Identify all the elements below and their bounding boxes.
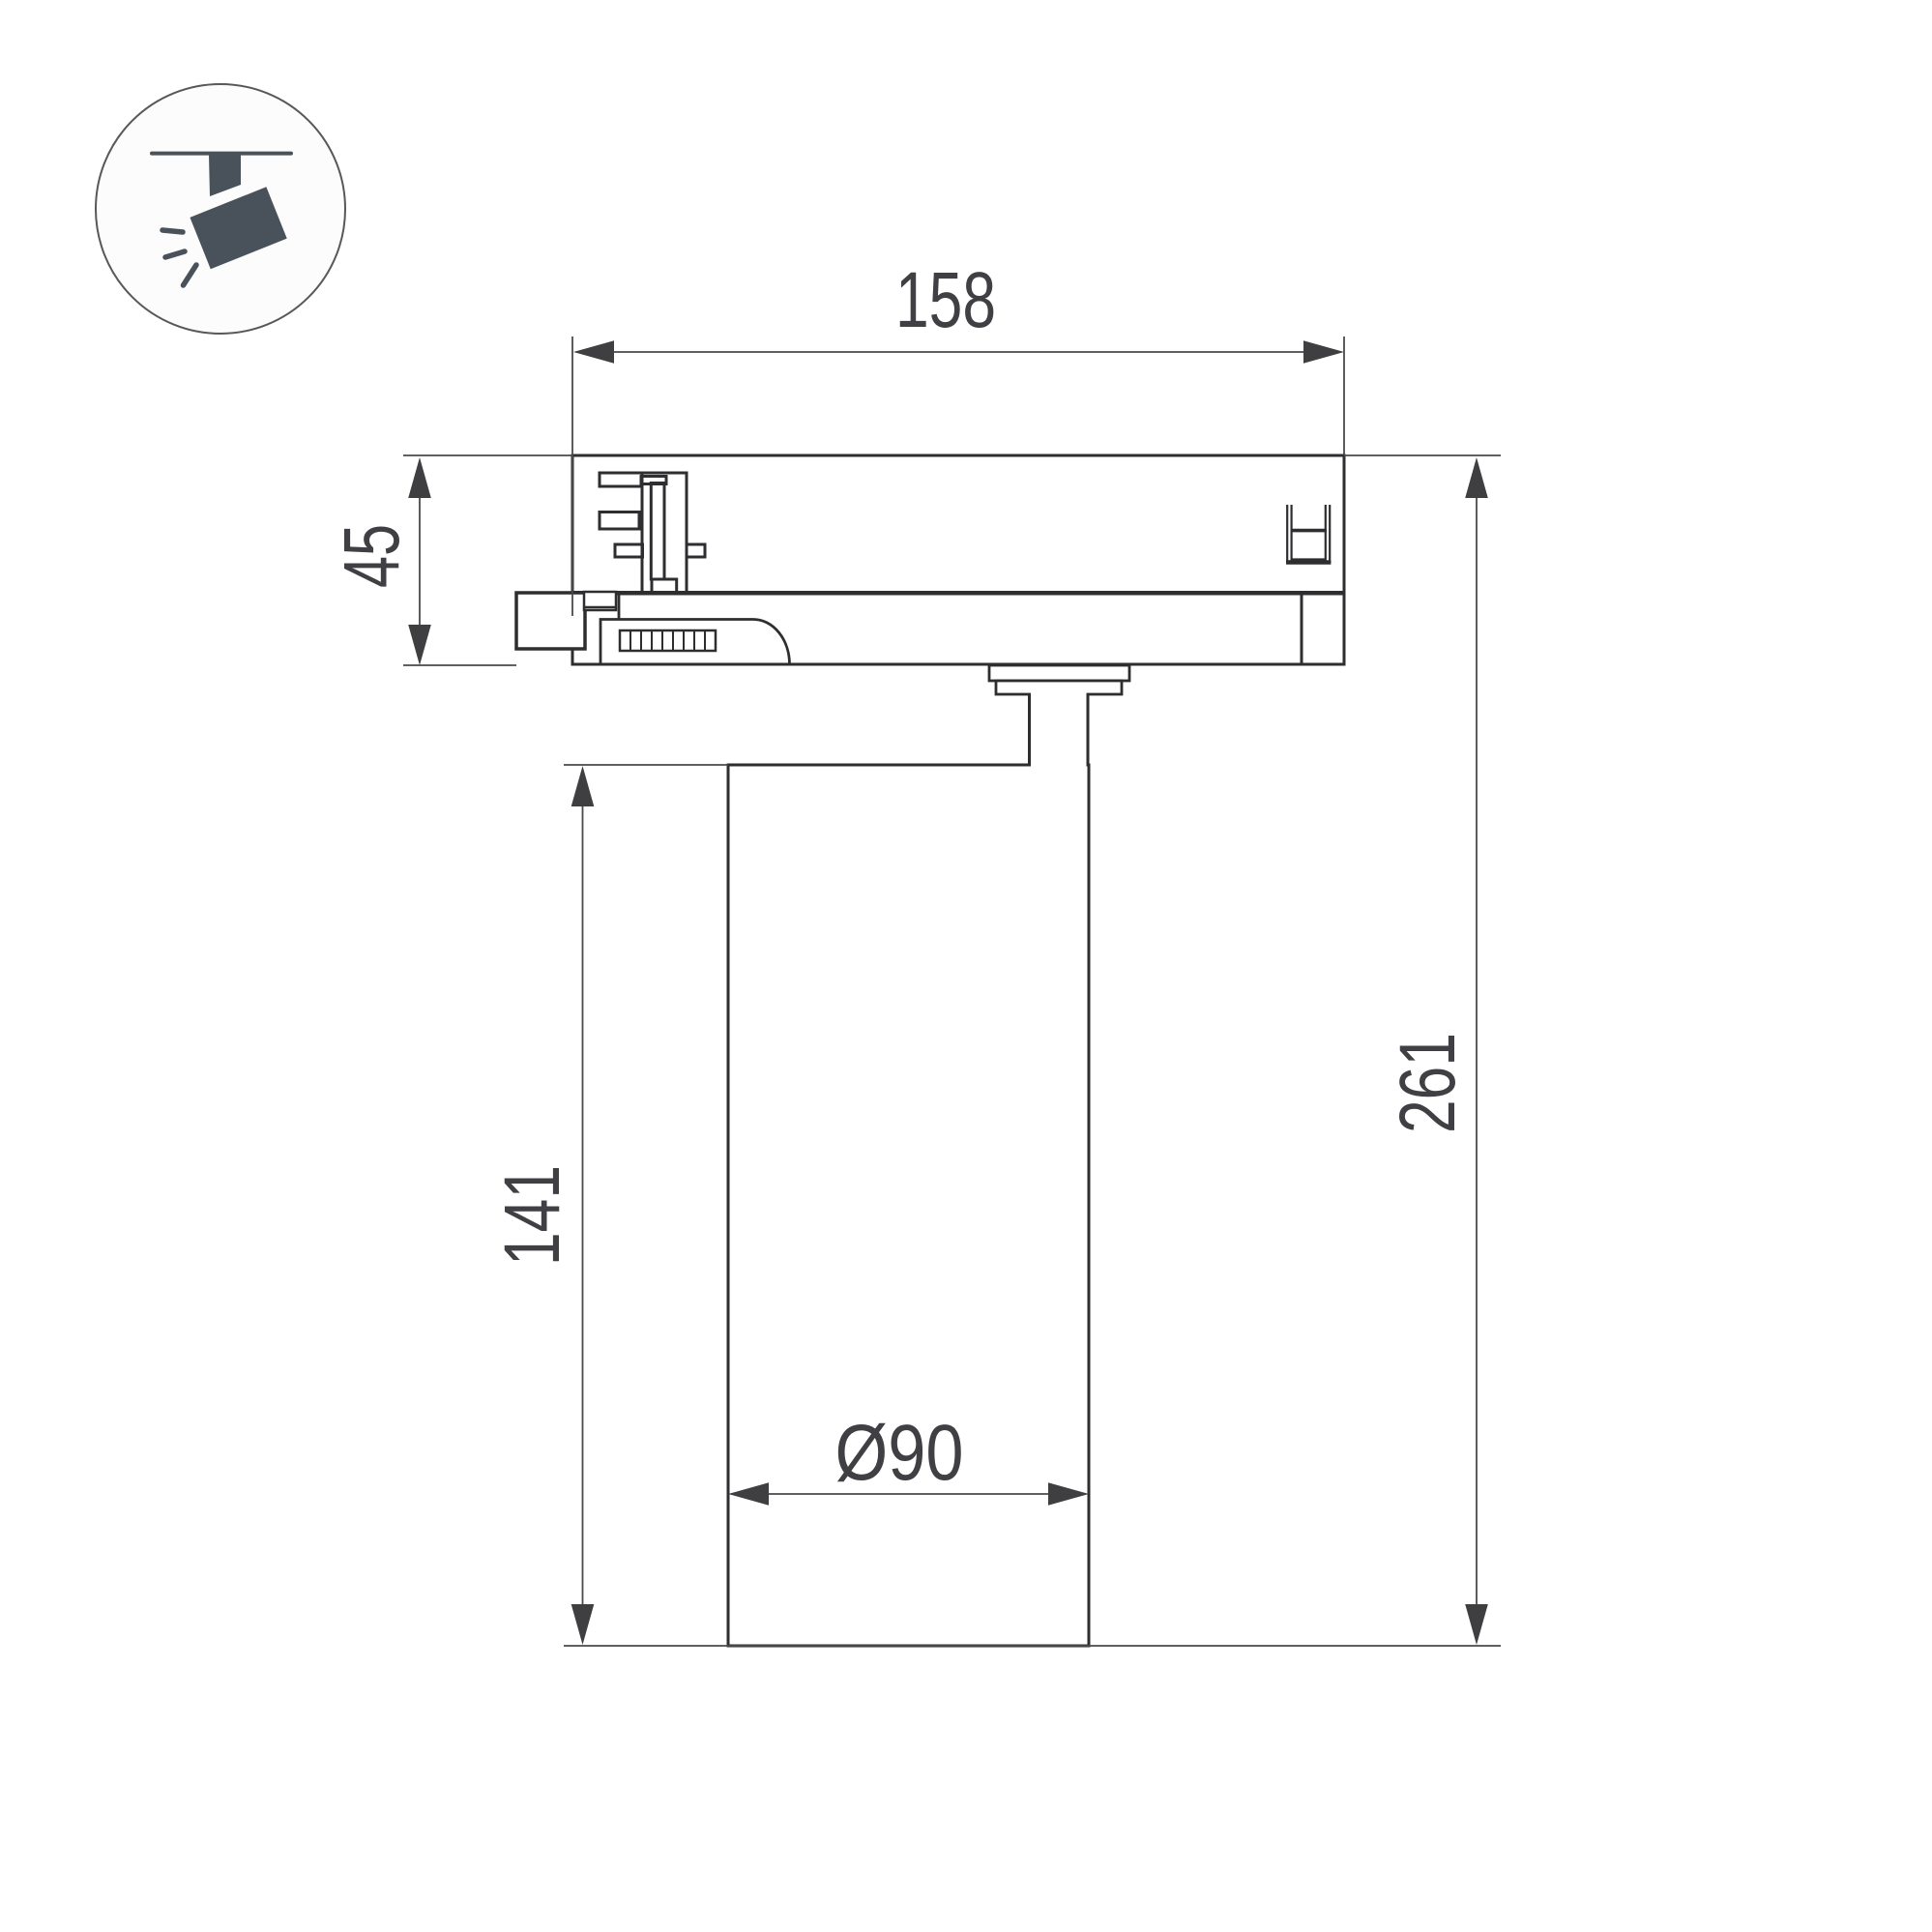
- svg-text:45: 45: [328, 524, 416, 588]
- svg-text:141: 141: [488, 1165, 576, 1266]
- svg-text:158: 158: [895, 256, 996, 344]
- svg-text:Ø90: Ø90: [835, 1409, 964, 1497]
- svg-text:261: 261: [1384, 1033, 1472, 1133]
